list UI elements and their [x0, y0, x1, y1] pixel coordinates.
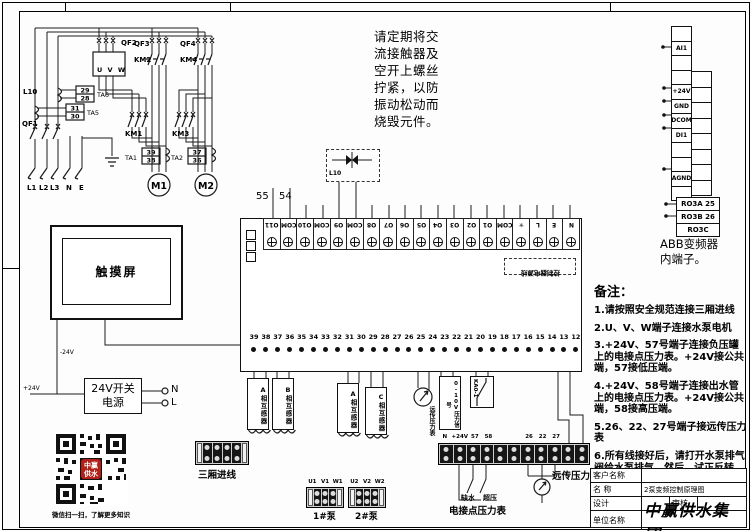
bottom-terminal-number: 24 — [427, 334, 439, 341]
field-strip-label — [576, 434, 590, 440]
controller-bottom-terminals: 39 38 37 36 35 34 — [248, 334, 582, 352]
top-terminal: O4 — [429, 218, 447, 250]
customer-name-label: 客户名称 — [591, 469, 641, 482]
top-terminal-label: COM — [281, 221, 296, 227]
field-strip-terminal — [508, 445, 521, 463]
pump1-terminal-label: U1 — [306, 479, 319, 485]
controller-pin — [246, 230, 256, 240]
wire-tag-55: 55 — [256, 191, 269, 202]
drawing-name-value: 2泵变频控制原理图 — [641, 483, 746, 496]
terminal-dot-icon — [311, 347, 316, 352]
controller-top-terminals: O11 COM O10 COM O9 C — [264, 218, 580, 250]
note-item: 3.+24V、57号端子连接负压罐上的电接点压力表。+24V接公共端，57接低压… — [594, 340, 747, 375]
psu-box: 24V开关电源 — [84, 378, 142, 414]
terminal-dot-icon — [406, 347, 411, 352]
touch-screen-label: 触摸屏 — [95, 263, 137, 280]
pump1-terminal-labels: U1V1W1 — [306, 479, 344, 485]
pump2-terminal-label: U2 — [348, 479, 361, 485]
field-strip-terminal — [481, 445, 494, 463]
title-block: 客户名称 名 称 2泵变频控制原理图 设计 审核 单位名称 中赢供水集团 — [590, 468, 747, 528]
controller-pin — [246, 241, 256, 251]
qr-logo-line1: 中赢 — [84, 461, 98, 470]
pump2-label: 2#泵 — [355, 509, 378, 522]
high-pressure-label: 超压 — [483, 493, 497, 503]
screw-terminal-icon — [466, 237, 476, 247]
bottom-terminal: 12 — [570, 334, 582, 352]
field-strip-terminal — [535, 445, 548, 463]
top-terminal-label: ✳ — [519, 221, 524, 227]
screw-terminal-icon — [317, 237, 327, 247]
screw-terminal-icon — [483, 237, 493, 247]
bottom-terminal-number: 27 — [391, 334, 403, 341]
field-strip-label: 27 — [549, 434, 563, 440]
bottom-terminal: 29 — [367, 334, 379, 352]
notes-title: 备注： — [594, 281, 747, 300]
abb-relay-output-block: RO3A 25RO3B 26RO3C — [676, 198, 720, 237]
field-strip-terminal — [575, 445, 588, 463]
ct-box-phase-a: A相互感器 — [337, 383, 359, 433]
terminal-dot-icon — [263, 347, 268, 352]
top-terminal-label: O6 — [400, 221, 409, 227]
top-terminal-label: O3 — [450, 221, 459, 227]
touch-screen-display: 触摸屏 — [62, 238, 171, 305]
field-strip-label — [563, 434, 577, 440]
field-strip-label: 58 — [482, 434, 496, 440]
top-terminal: E — [546, 218, 564, 250]
bottom-terminal-number: 16 — [522, 334, 534, 341]
bottom-terminal-number: 14 — [546, 334, 558, 341]
field-strip-terminal — [454, 445, 467, 463]
field-strip-label: +24V — [452, 434, 469, 440]
top-terminal-label: E — [552, 221, 556, 227]
bottom-terminal: 17 — [510, 334, 522, 352]
screw-terminal-icon — [433, 237, 443, 247]
pos24v-label: +24V — [23, 385, 40, 392]
abb-terminal-cell — [671, 142, 692, 158]
controller-power-note: 控制器电源线 — [521, 265, 560, 280]
terminal-dot-icon — [251, 347, 256, 352]
terminal-dot-icon — [299, 347, 304, 352]
terminal-dot-icon — [454, 347, 459, 352]
bottom-terminal-number: 35 — [296, 334, 308, 341]
abb-relay-output-cell: RO3A 25 — [676, 197, 720, 211]
top-terminal: O3 — [446, 218, 464, 250]
note-item: 4.+24V、58号端子连接出水管上的电接点压力表。+24V接公共端，58接高压… — [594, 381, 747, 416]
bottom-terminal: 36 — [284, 334, 296, 352]
qr-caption: 微信扫一扫，了解更多知识 — [44, 509, 138, 519]
bottom-terminal: 32 — [331, 334, 343, 352]
bottom-terminal: 15 — [534, 334, 546, 352]
terminal-dot-icon — [573, 347, 578, 352]
top-terminal: O1 — [479, 218, 497, 250]
terminal-dot-icon — [371, 347, 376, 352]
top-terminal: N — [562, 218, 580, 250]
bottom-terminal-number: 22 — [451, 334, 463, 341]
terminal-dot-icon — [430, 347, 435, 352]
controller-power-note-box: 控制器电源线 — [504, 258, 576, 275]
screw-terminal-icon — [350, 237, 360, 247]
l10-filter-box — [326, 149, 380, 182]
bottom-terminal-number: 30 — [355, 334, 367, 341]
pump2-terminal-label: W2 — [373, 479, 386, 485]
top-terminal: O8 — [363, 218, 381, 250]
terminal-dot-icon — [538, 347, 543, 352]
bottom-terminal: 38 — [260, 334, 272, 352]
abb-terminal-cell: GND — [671, 99, 692, 115]
notes-column: 备注： 1.请按照安全规范连接三厢进线2.U、V、W端子连接水泵电机3.+24V… — [594, 281, 747, 492]
screw-terminal-icon — [400, 237, 410, 247]
bottom-terminal: 37 — [272, 334, 284, 352]
terminal-dot-icon — [526, 347, 531, 352]
bottom-terminal-number: 32 — [331, 334, 343, 341]
top-terminal-label: L — [536, 221, 540, 227]
remote-gauge-label-vertical: 远传压力表 — [427, 406, 436, 436]
abb-terminal-cell: +24V — [671, 84, 692, 100]
pump1-terminal-label: W1 — [331, 479, 344, 485]
bottom-terminal: 25 — [415, 334, 427, 352]
terminal-dot-icon — [359, 347, 364, 352]
qr-logo-line2: 供水 — [83, 469, 99, 478]
top-terminal-label: O11 — [265, 221, 278, 227]
top-terminal: O5 — [413, 218, 431, 250]
terminal-dot-icon — [514, 347, 519, 352]
terminal-dot-icon — [478, 347, 483, 352]
top-terminal-label: O9 — [334, 221, 343, 227]
wire-tag-54: 54 — [279, 191, 292, 202]
top-terminal-label: O7 — [384, 221, 393, 227]
abb-terminal-left-column: AI1+24VGNDDCOMDI1AGND — [671, 27, 692, 201]
top-terminal-label: COM — [347, 221, 362, 227]
abb-caption-line1: ABB变频器 — [660, 236, 718, 252]
bottom-terminal-number: 25 — [415, 334, 427, 341]
abb-relay-output-cell: RO3C — [676, 223, 720, 237]
psu-label: 24V开关电源 — [87, 382, 139, 411]
field-strip-label: 57 — [468, 434, 482, 440]
bottom-terminal-number: 13 — [558, 334, 570, 341]
bottom-terminal-number: 20 — [475, 334, 487, 341]
screw-terminal-icon — [333, 237, 343, 247]
field-strip-terminal — [494, 445, 507, 463]
terminal-dot-icon — [561, 347, 566, 352]
bottom-terminal: 27 — [391, 334, 403, 352]
top-terminal-label: O2 — [467, 221, 476, 227]
pump1-label: 1#泵 — [313, 509, 336, 522]
abb-terminal-cell: AI1 — [671, 41, 692, 57]
bottom-terminal: 33 — [320, 334, 332, 352]
ct-box-pump-a: A相互感器 — [247, 378, 269, 430]
terminal-dot-icon — [490, 347, 495, 352]
bottom-terminal: 26 — [403, 334, 415, 352]
pressure-signal-box: 0-10V压力信号 — [439, 376, 461, 430]
contact-gauge-label: 电接点压力表 — [449, 503, 506, 517]
top-terminal: ✳ — [512, 218, 530, 250]
field-strip-labels: N+24V5758262227 — [438, 434, 590, 440]
schematic-sheet: 29 28 TA6 31 30 TA5 L10 QF1 L1 L2 L3 N E… — [0, 0, 751, 531]
screw-terminal-icon — [533, 237, 543, 247]
bottom-terminal: 22 — [451, 334, 463, 352]
neg24v-label: -24V — [60, 349, 74, 356]
company-name: 中赢供水集团 — [641, 511, 746, 530]
bottom-terminal: 19 — [486, 334, 498, 352]
controller-pin — [246, 252, 256, 262]
bottom-terminal: 13 — [558, 334, 570, 352]
top-terminal-label: COM — [314, 221, 329, 227]
bottom-terminal-number: 31 — [343, 334, 355, 341]
field-strip-terminal — [521, 445, 534, 463]
terminal-dot-icon — [347, 347, 352, 352]
pump1-terminal-label: V1 — [319, 479, 332, 485]
bottom-terminal: 14 — [546, 334, 558, 352]
bottom-terminal: 31 — [343, 334, 355, 352]
bottom-terminal-number: 12 — [570, 334, 582, 341]
note-item: 5.26、22、27号端子接远传压力表 — [594, 422, 747, 445]
terminal-dot-icon — [335, 347, 340, 352]
terminal-dot-icon — [442, 347, 447, 352]
incoming-block-label: 三厢进线 — [198, 467, 236, 481]
bottom-terminal: 20 — [475, 334, 487, 352]
field-strip-label — [495, 434, 509, 440]
top-terminal-label: COM — [497, 221, 512, 227]
abb-relay-output-cell: RO3B 26 — [676, 210, 720, 224]
designer-label: 设计 — [591, 497, 641, 510]
abb-terminal-cell — [671, 157, 692, 173]
bottom-terminal: 34 — [308, 334, 320, 352]
screw-terminal-icon — [416, 237, 426, 247]
field-strip-label — [509, 434, 523, 440]
bottom-terminal-number: 19 — [486, 334, 498, 341]
bottom-terminal: 35 — [296, 334, 308, 352]
top-terminal: COM — [346, 218, 364, 250]
drawing-name-label: 名 称 — [591, 483, 641, 496]
low-pressure-label: 缺水 — [461, 493, 475, 503]
psu-l-label: L — [171, 397, 177, 408]
abb-terminal-cell — [671, 70, 692, 86]
abb-terminal-cell — [671, 55, 692, 71]
top-terminal-label: O5 — [417, 221, 426, 227]
bottom-terminal-number: 18 — [498, 334, 510, 341]
bottom-terminal-number: 39 — [248, 334, 260, 341]
bottom-terminal-number: 34 — [308, 334, 320, 341]
field-strip-label: N — [438, 434, 452, 440]
pump2-terminal-block — [348, 487, 386, 508]
incoming-terminal-block — [195, 441, 249, 465]
touch-screen: 触摸屏 — [50, 225, 183, 320]
top-terminal: O11 — [263, 218, 281, 250]
pump2-terminal-label: V2 — [361, 479, 374, 485]
bottom-terminal-number: 15 — [534, 334, 546, 341]
ct-box-phase-c: C相互感器 — [365, 387, 387, 435]
top-terminal-label: O10 — [298, 221, 311, 227]
bottom-terminal-number: 21 — [463, 334, 475, 341]
field-strip-terminal — [467, 445, 480, 463]
bottom-terminal-number: 28 — [379, 334, 391, 341]
top-terminal: O6 — [396, 218, 414, 250]
bottom-terminal: 18 — [498, 334, 510, 352]
top-terminal-label: O4 — [433, 221, 442, 227]
qr-code: 中赢 供水 — [54, 432, 128, 506]
note-item: 2.U、V、W端子连接水泵电机 — [594, 323, 747, 335]
bottom-terminal-number: 38 — [260, 334, 272, 341]
pump1-terminal-block — [306, 487, 344, 508]
top-terminal: L — [529, 218, 547, 250]
relay-ka01-label: KA0-1 — [472, 379, 478, 397]
abb-terminal-cell — [671, 26, 692, 42]
top-terminal: COM — [280, 218, 298, 250]
top-terminal: O10 — [296, 218, 314, 250]
bottom-terminal-number: 23 — [439, 334, 451, 341]
company-label: 单位名称 — [591, 511, 641, 530]
relay-ka01-box: KA0-1 — [470, 376, 494, 408]
ct-box-pump-b: B相互感器 — [272, 378, 294, 430]
pump2-terminal-labels: U2V2W2 — [348, 479, 386, 485]
l10-box-label: L10 — [329, 170, 341, 177]
screw-terminal-icon — [300, 237, 310, 247]
terminal-dot-icon — [287, 347, 292, 352]
screw-terminal-icon — [566, 237, 576, 247]
screw-terminal-icon — [516, 237, 526, 247]
field-strip-terminal — [548, 445, 561, 463]
screw-terminal-icon — [267, 237, 277, 247]
note-item: 1.请按照安全规范连接三厢进线 — [594, 305, 747, 317]
terminal-dot-icon — [383, 347, 388, 352]
bottom-terminal-number: 17 — [510, 334, 522, 341]
bottom-terminal-number: 36 — [284, 334, 296, 341]
top-terminal: O7 — [379, 218, 397, 250]
terminal-dot-icon — [323, 347, 328, 352]
bottom-terminal: 21 — [463, 334, 475, 352]
terminal-dot-icon — [418, 347, 423, 352]
top-terminal: COM — [313, 218, 331, 250]
abb-terminal-cell: AGND — [671, 171, 692, 187]
terminal-dot-icon — [502, 347, 507, 352]
bottom-terminal-number: 29 — [367, 334, 379, 341]
field-strip-label: 22 — [536, 434, 550, 440]
top-terminal-label: O8 — [367, 221, 376, 227]
top-terminal: O2 — [463, 218, 481, 250]
notes-list: 1.请按照安全规范连接三厢进线2.U、V、W端子连接水泵电机3.+24V、57号… — [594, 305, 747, 486]
terminal-dot-icon — [466, 347, 471, 352]
psu-n-label: N — [171, 384, 178, 395]
top-terminal: COM — [496, 218, 514, 250]
top-terminal-label: O1 — [483, 221, 492, 227]
top-terminal-label: N — [569, 221, 574, 227]
terminal-dot-icon — [395, 347, 400, 352]
bottom-terminal: 24 — [427, 334, 439, 352]
bottom-terminal-number: 37 — [272, 334, 284, 341]
field-strip-terminal — [562, 445, 575, 463]
screw-terminal-icon — [450, 237, 460, 247]
terminal-dot-icon — [275, 347, 280, 352]
abb-caption-line2: 内端子。 — [660, 251, 706, 267]
bottom-terminal: 30 — [355, 334, 367, 352]
screw-terminal-icon — [549, 237, 559, 247]
bottom-terminal-number: 26 — [403, 334, 415, 341]
screw-terminal-icon — [283, 237, 293, 247]
field-strip-terminal — [440, 445, 453, 463]
bottom-terminal-number: 33 — [320, 334, 332, 341]
abb-terminal-cell: DI1 — [671, 128, 692, 144]
field-strip-label: 26 — [522, 434, 536, 440]
bottom-terminal: 28 — [379, 334, 391, 352]
bottom-terminal: 39 — [248, 334, 260, 352]
screw-terminal-icon — [367, 237, 377, 247]
customer-name-value — [641, 469, 746, 482]
abb-terminal-cell: DCOM — [671, 113, 692, 129]
top-terminal: O9 — [330, 218, 348, 250]
screw-terminal-icon — [500, 237, 510, 247]
abb-terminal-right-column — [691, 72, 712, 196]
terminal-dot-icon — [550, 347, 555, 352]
field-terminal-strip — [438, 443, 590, 465]
screw-terminal-icon — [383, 237, 393, 247]
bottom-terminal: 23 — [439, 334, 451, 352]
bottom-terminal: 16 — [522, 334, 534, 352]
